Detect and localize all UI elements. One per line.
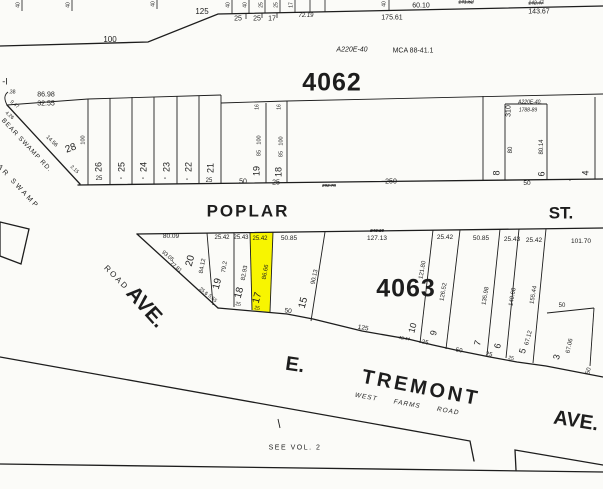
lot-6-number: 6: [538, 171, 547, 176]
dim-14-56: 14.56: [44, 135, 58, 149]
dim-310: 310: [506, 105, 513, 117]
annotation-mca: MCA 88-41.1: [393, 48, 434, 55]
dim-depth: 85: [257, 150, 263, 156]
dim-101-70: 101.70: [571, 239, 591, 246]
lot-7-number: 7: [473, 339, 483, 346]
lot-20-number: 20: [185, 254, 198, 267]
dim: 25.42: [214, 235, 229, 241]
center-dot: ·: [569, 177, 572, 185]
lot-25-number: 25: [118, 162, 127, 172]
dim-frontage: 25: [421, 339, 429, 346]
dim: 50.85: [281, 236, 297, 243]
lot-22-number: 22: [185, 162, 194, 172]
dim-50-inner: 50: [559, 303, 566, 309]
dim-depth: 100: [279, 136, 285, 145]
lot-23-number: 23: [163, 162, 172, 172]
dim-frontage: 25: [485, 351, 493, 358]
street-label-west: WEST: [354, 393, 378, 403]
dim-2-15: 2.15: [69, 165, 79, 175]
dim: 25.43: [233, 235, 248, 241]
street-label-poplar: POPLAR: [207, 203, 290, 220]
dim-old: 243.18: [370, 229, 384, 234]
stub-dim: 40: [383, 1, 388, 7]
dim-77-81: 77.81: [168, 261, 182, 274]
dim-25: 25: [253, 16, 261, 23]
lot-26-number: 26: [95, 162, 104, 172]
dim-depth: 90.13: [311, 269, 320, 285]
dim-127-13: 127.13: [367, 236, 387, 243]
block-4063-label: 4063: [376, 277, 436, 302]
dim-depth: 79.2: [221, 261, 229, 274]
stub-dim: 25: [275, 2, 280, 8]
dim-old: 292.78: [322, 184, 336, 189]
map-labels-layer: 10012525251772.19175.6160.10141.52142.47…: [0, 0, 603, 489]
stub-dim: 25: [260, 2, 265, 8]
dim-frontage: 50: [523, 181, 530, 188]
dim-ditto: ": [186, 179, 188, 185]
street-label-ave-east: AVE.: [552, 408, 600, 435]
dim-frontage: 50: [455, 347, 463, 354]
dim-frontage: 50: [585, 367, 593, 375]
street-label-road-2: ROAD: [436, 407, 460, 417]
dim-38: .38: [9, 91, 16, 96]
dim-ditto: ": [120, 178, 122, 184]
stub-dim: 40: [244, 2, 249, 8]
block-4062-label: 4062: [302, 71, 362, 96]
lot-18-number: 18: [275, 167, 284, 177]
dim-old: 43.44: [398, 336, 410, 342]
dim-lot17: 25.42: [252, 236, 267, 242]
dim-143-67: 143.67: [528, 9, 549, 16]
dim-frontage: 25: [508, 356, 514, 362]
lot-15-number: 15: [298, 296, 311, 309]
annotation-a220e-2: A220E-40,: [518, 101, 542, 106]
dim-frontage: 25: [206, 178, 213, 184]
dim-depth: 155.44: [529, 285, 538, 304]
dim-frontage: 25: [235, 302, 241, 308]
lot-21-number: 21: [207, 163, 216, 173]
dim-frontage: 25: [272, 180, 280, 187]
label-parcel-edge: -I: [2, 78, 8, 87]
lot-17-number: 17: [252, 291, 265, 304]
lot-24-number: 24: [140, 162, 149, 172]
dim-depth: 84.12: [199, 258, 208, 274]
dim-ditto: ": [142, 178, 144, 184]
dim-80-09: 80.09: [163, 234, 179, 241]
street-label-st: ST.: [549, 205, 574, 222]
lot-3-number: 3: [552, 353, 562, 360]
dim-125: 125: [195, 8, 208, 16]
lot-19-number: 19: [253, 166, 262, 176]
dim-17: 17: [268, 16, 276, 23]
dim: 25.42: [437, 235, 453, 242]
dim-9-47: 9.47: [9, 100, 20, 110]
dim-100v: 100: [81, 135, 87, 144]
dim-depth-lot17: 86.66: [262, 264, 271, 280]
stub-dim: 17: [290, 2, 295, 8]
dim-depth: 140.68: [508, 287, 517, 306]
dim-depth: 80: [508, 147, 514, 154]
dim: 25.43: [504, 237, 520, 244]
dim-250: 250: [385, 179, 397, 186]
dim-67-06: 67.06: [566, 338, 575, 354]
street-bear-swamp-rd: BEAR SWAMP RD.: [0, 118, 52, 174]
dim-25: 25: [234, 16, 242, 23]
dim-16: 16: [256, 104, 261, 110]
lot-6b-number: 6: [493, 342, 503, 349]
dim-72-19: 72.19: [298, 13, 313, 19]
lot-4-number: 4: [582, 170, 591, 175]
label-ar-swamp: AR SWAMP: [0, 163, 40, 210]
stub-dim: 40: [227, 2, 232, 8]
dim-frontage: 50: [284, 308, 292, 315]
dim-67-12: 67.12: [524, 330, 534, 346]
dim-5-55: 5.55: [207, 294, 218, 304]
stub-dim: 40: [152, 1, 157, 7]
tax-map-canvas[interactable]: 10012525251772.19175.6160.10141.52142.47…: [0, 0, 603, 489]
street-label-road: ROAD: [102, 264, 130, 292]
dim-frontage: 50: [239, 179, 247, 186]
dim-frontage: 125: [357, 325, 369, 333]
dim-32-55: 32.55: [37, 101, 55, 108]
dim-175-61: 175.61: [381, 15, 402, 22]
dim-frontage: 25: [96, 176, 103, 182]
dim-depth: 100: [257, 135, 263, 144]
dim-16: 16: [278, 104, 283, 110]
lot-9-number: 9: [429, 329, 439, 336]
dim-frontage: 25: [254, 306, 260, 312]
annotation-a220e: A220E-40: [336, 47, 367, 54]
dim-60-10: 60.10: [412, 3, 430, 10]
dim-142-47: 142.47: [528, 2, 543, 7]
lot-8-number: 8: [493, 170, 502, 175]
dim-86-98: 86.98: [37, 92, 55, 99]
street-label-ave-west: AVE.: [122, 282, 169, 331]
lot-5-number: 5: [518, 347, 528, 354]
street-label-farms: FARMS: [393, 399, 421, 410]
dim-depth: 85: [279, 151, 285, 157]
dim: 25.42: [526, 238, 542, 245]
dim-100: 100: [103, 36, 116, 44]
dim: 50.85: [473, 236, 489, 243]
dim-depth: 126.52: [439, 282, 448, 301]
dim-depth: 82.93: [241, 265, 250, 281]
dim-ditto: ": [164, 178, 166, 184]
stub-dim: 40: [17, 2, 22, 8]
lot-18b-number: 18: [234, 286, 247, 299]
stub-dim: 40: [67, 2, 72, 8]
lot-28-number: 28: [64, 142, 78, 155]
lot-19b-number: 19: [212, 277, 225, 290]
street-label-e: E.: [284, 354, 306, 376]
street-label-tremont: TREMONT: [360, 367, 482, 410]
note-see-vol-2: SEE VOL. 2: [269, 445, 322, 452]
dim-141-52: 141.52: [458, 1, 473, 6]
dim-depth: 135.98: [481, 286, 490, 305]
lot-10-number: 10: [407, 322, 418, 334]
annotation-1788: 1788-89: [519, 109, 537, 114]
dim-depth: 80.14: [539, 139, 545, 154]
